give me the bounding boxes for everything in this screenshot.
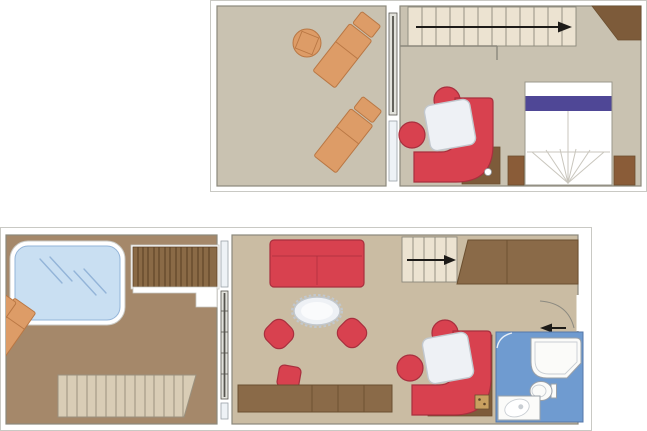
stool bbox=[397, 355, 423, 381]
entry-opening bbox=[577, 295, 581, 331]
lower-staircase bbox=[402, 237, 457, 282]
bed-runner bbox=[526, 96, 612, 111]
corner-unit-knob bbox=[485, 169, 492, 176]
upper-balcony-divider bbox=[389, 13, 397, 181]
square-table bbox=[423, 98, 476, 151]
nightstand-right bbox=[614, 156, 635, 185]
lower-balcony-divider bbox=[221, 241, 228, 419]
double-bed bbox=[525, 82, 612, 185]
square-table bbox=[421, 331, 474, 384]
two-seat-sofa bbox=[270, 240, 364, 287]
decking-steps-lower bbox=[58, 375, 196, 417]
washbasin-vanity bbox=[498, 396, 540, 420]
nightstand-left bbox=[508, 156, 524, 185]
bedroom-window bbox=[389, 121, 397, 181]
living-room-window bbox=[221, 241, 228, 287]
suite-floor-plan-screenshot bbox=[0, 0, 647, 431]
bathroom bbox=[496, 332, 583, 422]
upper-deck-plan bbox=[210, 0, 647, 192]
lower-deck-plan bbox=[0, 227, 592, 431]
mini-fridge bbox=[475, 395, 489, 409]
sideboard-cabinets bbox=[238, 385, 392, 412]
stool bbox=[399, 122, 425, 148]
under-stair-wardrobe bbox=[457, 240, 578, 284]
upper-staircase bbox=[408, 7, 576, 46]
living-room-window bbox=[221, 403, 228, 419]
